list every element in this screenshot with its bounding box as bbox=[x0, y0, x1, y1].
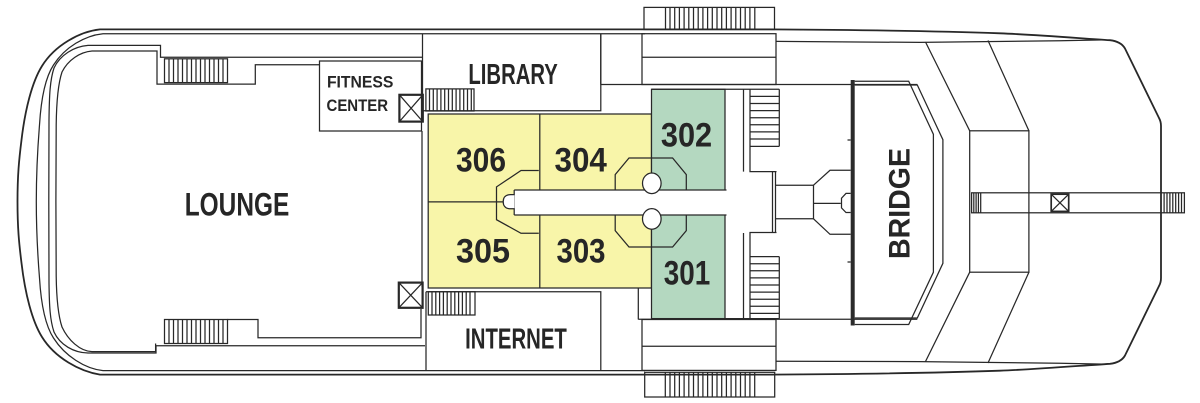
svg-text:304: 304 bbox=[555, 142, 607, 180]
svg-text:LIBRARY: LIBRARY bbox=[468, 59, 557, 91]
svg-text:FITNESS: FITNESS bbox=[327, 74, 394, 92]
svg-text:BRIDGE: BRIDGE bbox=[884, 148, 917, 259]
svg-text:305: 305 bbox=[456, 233, 510, 271]
svg-text:INTERNET: INTERNET bbox=[465, 323, 567, 355]
svg-text:LOUNGE: LOUNGE bbox=[185, 186, 290, 222]
svg-text:303: 303 bbox=[557, 233, 606, 271]
svg-text:CENTER: CENTER bbox=[327, 97, 389, 115]
svg-text:302: 302 bbox=[661, 116, 712, 154]
svg-text:301: 301 bbox=[664, 254, 711, 292]
svg-text:306: 306 bbox=[456, 142, 506, 180]
